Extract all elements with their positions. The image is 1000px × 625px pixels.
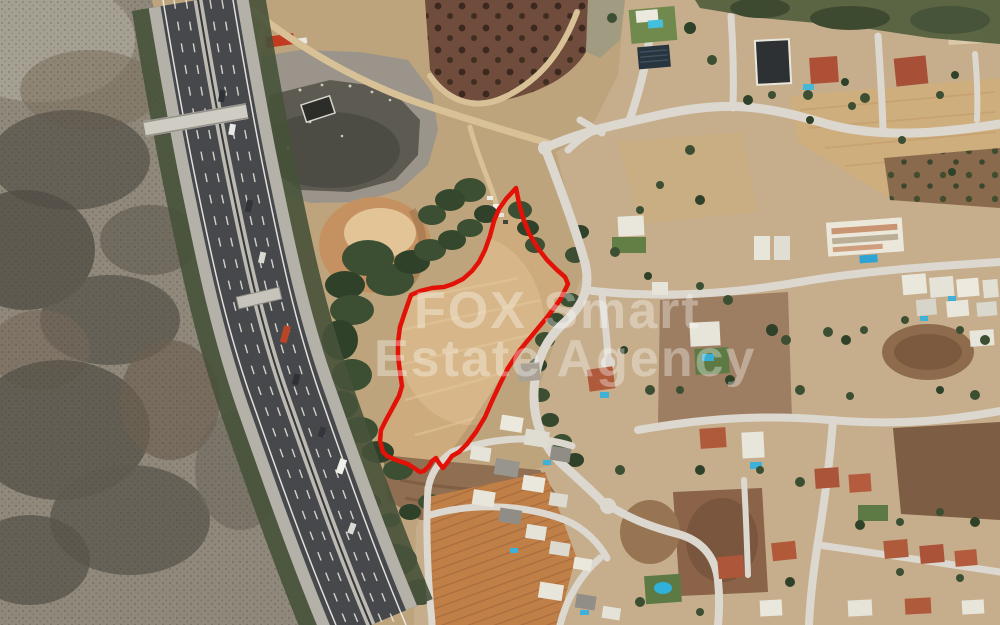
swimming-pool: [648, 19, 664, 28]
watermark: FOX Smart Estate Agency: [374, 282, 756, 388]
watermark-line-2: Estate Agency: [374, 330, 756, 388]
satellite-map: FOX Smart Estate Agency: [0, 0, 1000, 625]
dark-roof-building: [755, 39, 791, 85]
kidney-pool: [654, 582, 672, 594]
satellite-screenshot: FOX Smart Estate Agency: [0, 0, 1000, 625]
